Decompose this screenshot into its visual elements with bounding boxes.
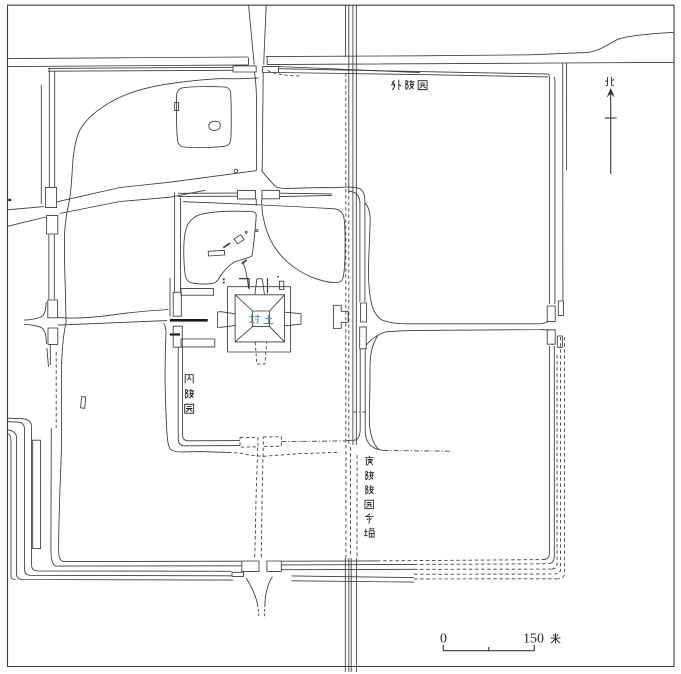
svg-text:150: 150 — [523, 632, 544, 647]
svg-text:0: 0 — [440, 632, 447, 647]
